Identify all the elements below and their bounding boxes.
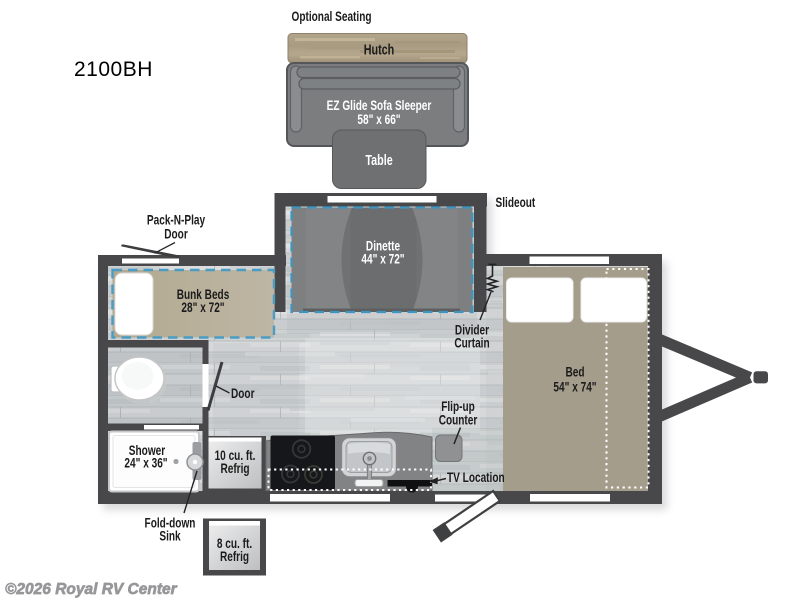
svg-text:Curtain: Curtain [454, 335, 489, 351]
svg-text:54" x 74": 54" x 74" [553, 379, 596, 395]
svg-text:Slideout: Slideout [496, 194, 536, 210]
svg-text:Refrig: Refrig [220, 548, 249, 564]
svg-text:58" x 66": 58" x 66" [357, 111, 400, 127]
svg-text:28" x 72": 28" x 72" [181, 299, 224, 315]
svg-text:Door: Door [231, 385, 255, 401]
svg-text:Bed: Bed [565, 364, 584, 380]
svg-text:Hutch: Hutch [364, 41, 395, 58]
svg-text:Door: Door [164, 226, 188, 242]
svg-text:Refrig: Refrig [220, 460, 249, 476]
svg-text:©2026 Royal RV Center: ©2026 Royal RV Center [5, 581, 178, 598]
svg-text:44" x 72": 44" x 72" [361, 251, 404, 267]
svg-text:2100BH: 2100BH [74, 58, 153, 81]
svg-text:Counter: Counter [439, 412, 478, 428]
svg-text:TV Location: TV Location [447, 469, 505, 485]
svg-text:Optional Seating: Optional Seating [291, 8, 371, 24]
svg-text:Sink: Sink [159, 528, 180, 544]
svg-text:24" x 36": 24" x 36" [124, 455, 167, 471]
svg-text:Table: Table [365, 151, 392, 168]
